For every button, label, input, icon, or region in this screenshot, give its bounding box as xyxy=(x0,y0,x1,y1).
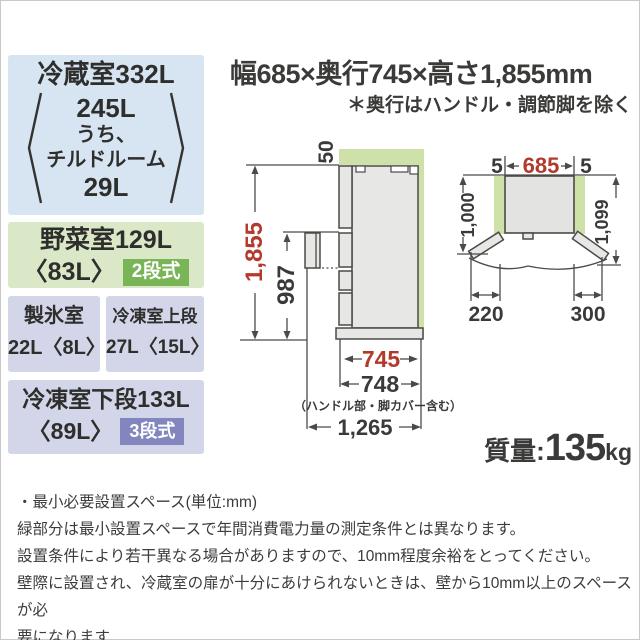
dim-door-open-depth-label: 1,265 xyxy=(337,415,392,440)
dim-left-door-label: 220 xyxy=(468,303,503,326)
footnote-line: ・最小必要設置スペース(単位:mm) xyxy=(17,489,632,516)
top-clearance-right-zone xyxy=(574,176,585,234)
side-base-cover xyxy=(336,328,423,339)
side-top-slot-1 xyxy=(356,166,365,172)
side-top-slot-2 xyxy=(391,166,408,172)
footnote-line: 緑部分は最小設置スペースで年間消費電力量の測定条件とは異なります。 xyxy=(17,516,632,543)
footnote-line: 要になります xyxy=(17,624,632,640)
weight-unit: kg xyxy=(605,439,632,466)
weight-value: 135 xyxy=(545,427,605,470)
side-door-panel-1 xyxy=(339,166,352,228)
side-top-back-notch xyxy=(410,166,418,174)
side-fridge-body xyxy=(352,166,418,328)
top-view-diagram: 5 685 5 1,000 1,099 220 300 xyxy=(457,153,621,326)
spec-sheet: 冷蔵室332L 245L うち、 チルドルーム 29L 野菜室129L 〈83L… xyxy=(0,0,640,640)
footnotes: ・最小必要設置スペース(単位:mm) 緑部分は最小設置スペースで年間消費電力量の… xyxy=(17,489,632,640)
left-door-swing-arc xyxy=(469,258,528,269)
side-door-panel-3 xyxy=(339,271,352,290)
side-door-panel-4 xyxy=(339,293,352,325)
dim-depth-left-label: 1,000 xyxy=(458,192,478,237)
side-door-panel-2 xyxy=(339,233,352,267)
dim-depth-label: 745 xyxy=(362,346,401,372)
dim-top-clearance-label: 50 xyxy=(315,140,338,163)
side-view-diagram: 1,855 987 50 745 748 （ハンドル部・脚カバー含む） 1,26… xyxy=(240,140,462,440)
dim-handle-height-label: 987 xyxy=(273,265,300,305)
weight-label: 質量: xyxy=(484,431,545,468)
top-center-hinge xyxy=(523,233,533,239)
dim-gap-left-label: 5 xyxy=(491,155,503,178)
top-fridge-body xyxy=(505,176,574,233)
dim-gap-right-label: 5 xyxy=(580,155,592,178)
right-door-swing-arc xyxy=(528,259,607,269)
depth-note-label: （ハンドル部・脚カバー含む） xyxy=(294,398,462,413)
side-clearance-top-zone xyxy=(339,149,424,165)
footnote-line: 設置条件により若干異なる場合がありますので、10mm程度余裕をとってください。 xyxy=(17,543,632,570)
top-clearance-left-zone xyxy=(494,176,505,234)
weight-line: 質量:135kg xyxy=(440,427,632,470)
side-handle xyxy=(305,233,320,268)
dim-right-door-label: 300 xyxy=(570,303,605,326)
footnote-line: 壁際に設置され、冷蔵室の扉が十分にあけられないときは、壁から10mm以上のスペー… xyxy=(17,570,632,624)
dim-width-label: 685 xyxy=(523,153,560,178)
dim-depth-right-label: 1,099 xyxy=(592,199,612,244)
dim-depth-incl-handle-label: 748 xyxy=(361,371,400,397)
dim-height-label: 1,855 xyxy=(241,222,268,282)
